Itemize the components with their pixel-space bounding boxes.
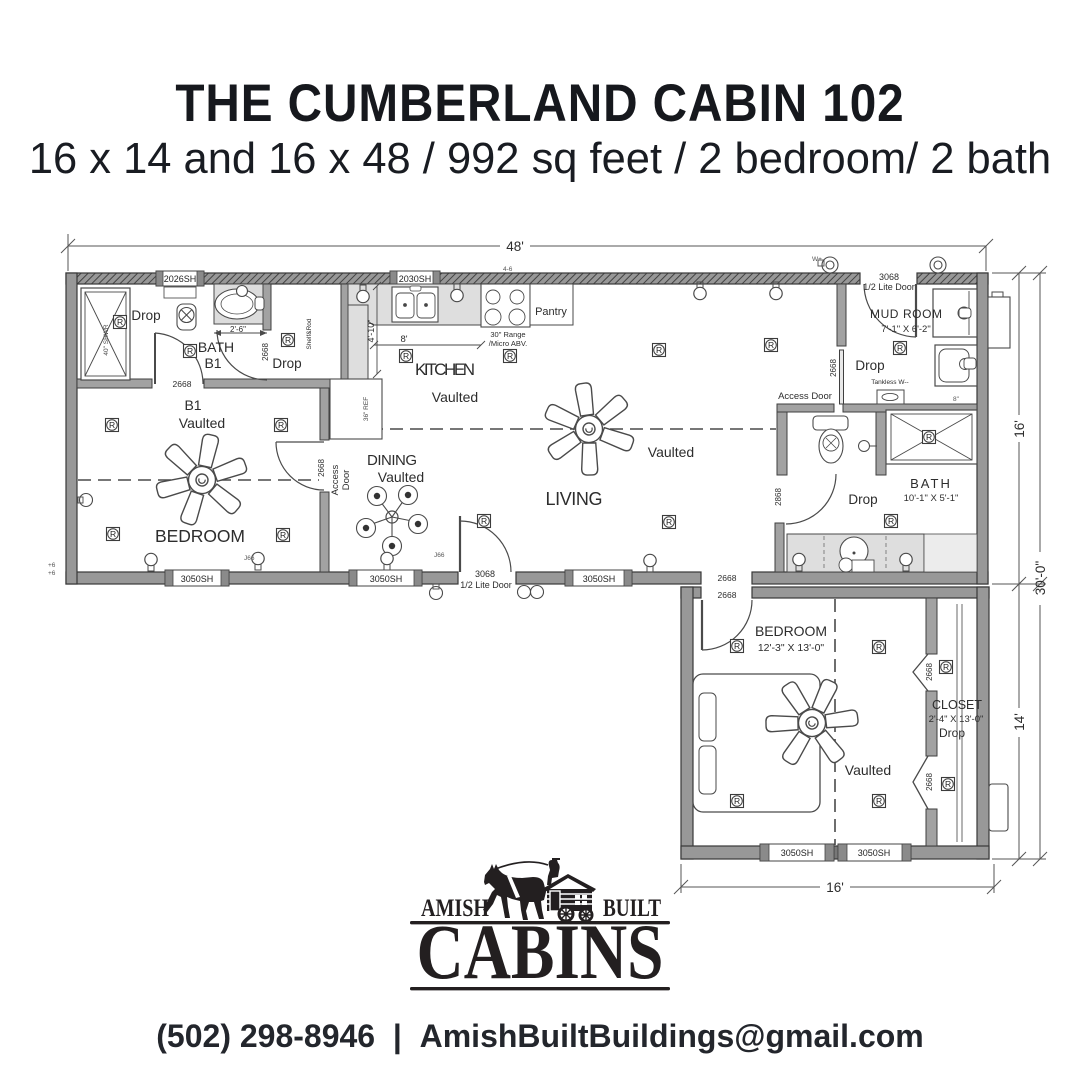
svg-text:LIVING: LIVING	[546, 489, 603, 509]
svg-text:+6: +6	[48, 570, 56, 577]
svg-text:10'-1" X 5'-1": 10'-1" X 5'-1"	[904, 493, 959, 504]
svg-text:BATH: BATH	[910, 476, 952, 491]
svg-text:2668: 2668	[261, 343, 270, 361]
svg-text:8': 8'	[400, 334, 407, 345]
svg-text:4-6: 4-6	[503, 266, 513, 273]
svg-text:BEDROOM: BEDROOM	[155, 526, 245, 546]
svg-text:2'-4" X 13'-0": 2'-4" X 13'-0"	[929, 714, 984, 725]
svg-text:3050SH: 3050SH	[583, 574, 616, 584]
svg-text:2668: 2668	[718, 573, 737, 583]
svg-text:Drop: Drop	[855, 358, 884, 373]
svg-text:KITCHEN: KITCHEN	[415, 360, 475, 379]
svg-text:Vaulted: Vaulted	[432, 389, 478, 405]
svg-text:16': 16'	[826, 880, 844, 895]
svg-text:CABINS: CABINS	[417, 908, 664, 995]
svg-text:B1: B1	[204, 355, 221, 371]
svg-text:Vaulted: Vaulted	[648, 444, 694, 460]
svg-text:2030SH: 2030SH	[399, 274, 432, 284]
svg-text:3050SH: 3050SH	[181, 574, 214, 584]
svg-text:J66: J66	[434, 552, 445, 559]
svg-text:2668: 2668	[925, 663, 934, 681]
svg-text:Vaulted: Vaulted	[179, 415, 225, 431]
svg-text:3068: 3068	[879, 272, 899, 282]
svg-text:Vaulted: Vaulted	[845, 762, 891, 778]
svg-text:2668: 2668	[718, 590, 737, 600]
svg-text:Drop: Drop	[272, 356, 301, 371]
svg-text:4'-10": 4'-10"	[366, 320, 376, 343]
svg-text:14': 14'	[1012, 713, 1027, 731]
svg-text:48': 48'	[506, 239, 524, 254]
svg-text:2026SH: 2026SH	[164, 274, 197, 284]
svg-text:3050SH: 3050SH	[781, 848, 814, 858]
svg-text:BATH: BATH	[198, 339, 234, 355]
svg-text:30" Range: 30" Range	[490, 330, 525, 339]
svg-text:40" SHWR: 40" SHWR	[103, 324, 110, 356]
svg-text:30'-0": 30'-0"	[1033, 561, 1048, 596]
svg-text:B1: B1	[184, 397, 201, 413]
svg-text:CLOSET: CLOSET	[932, 698, 982, 712]
svg-text:2668: 2668	[317, 459, 326, 477]
svg-text:Shelf&Rod: Shelf&Rod	[306, 318, 313, 349]
svg-text:BEDROOM: BEDROOM	[755, 623, 827, 639]
svg-text:DINING: DINING	[367, 452, 417, 469]
svg-text:7'-1" X 6'-2": 7'-1" X 6'-2"	[881, 324, 930, 335]
svg-text:Vaulted: Vaulted	[378, 469, 424, 485]
svg-text:Drop: Drop	[848, 492, 877, 507]
svg-text:Pantry: Pantry	[535, 306, 567, 318]
svg-text:2668: 2668	[925, 773, 934, 791]
svg-text:1/2 Lite Door: 1/2 Lite Door	[863, 282, 915, 292]
svg-text:Tankless W--: Tankless W--	[871, 379, 908, 386]
svg-text:Access Door: Access Door	[778, 391, 832, 402]
svg-text:36" REF: 36" REF	[363, 397, 370, 421]
svg-text:3068: 3068	[475, 569, 495, 579]
svg-text:Door: Door	[341, 470, 352, 491]
svg-text:3050SH: 3050SH	[858, 848, 891, 858]
svg-text:1/2 Lite Door: 1/2 Lite Door	[460, 580, 512, 590]
svg-text:3050SH: 3050SH	[370, 574, 403, 584]
svg-text:Access: Access	[330, 464, 341, 495]
svg-text:2668: 2668	[173, 379, 192, 389]
svg-text:8": 8"	[953, 396, 960, 403]
svg-text:12'-3" X 13'-0": 12'-3" X 13'-0"	[758, 642, 825, 654]
svg-text:J66: J66	[244, 555, 255, 562]
svg-text:Drop: Drop	[939, 726, 965, 740]
svg-text:2868: 2868	[774, 488, 783, 506]
svg-text:W+: W+	[812, 256, 822, 263]
svg-text:+6: +6	[48, 562, 56, 569]
svg-text:16': 16'	[1012, 420, 1027, 438]
svg-text:Drop: Drop	[131, 308, 160, 323]
svg-text:/Micro ABV.: /Micro ABV.	[489, 339, 528, 348]
svg-text:2668: 2668	[829, 359, 838, 377]
svg-text:MUD ROOM: MUD ROOM	[870, 307, 942, 321]
